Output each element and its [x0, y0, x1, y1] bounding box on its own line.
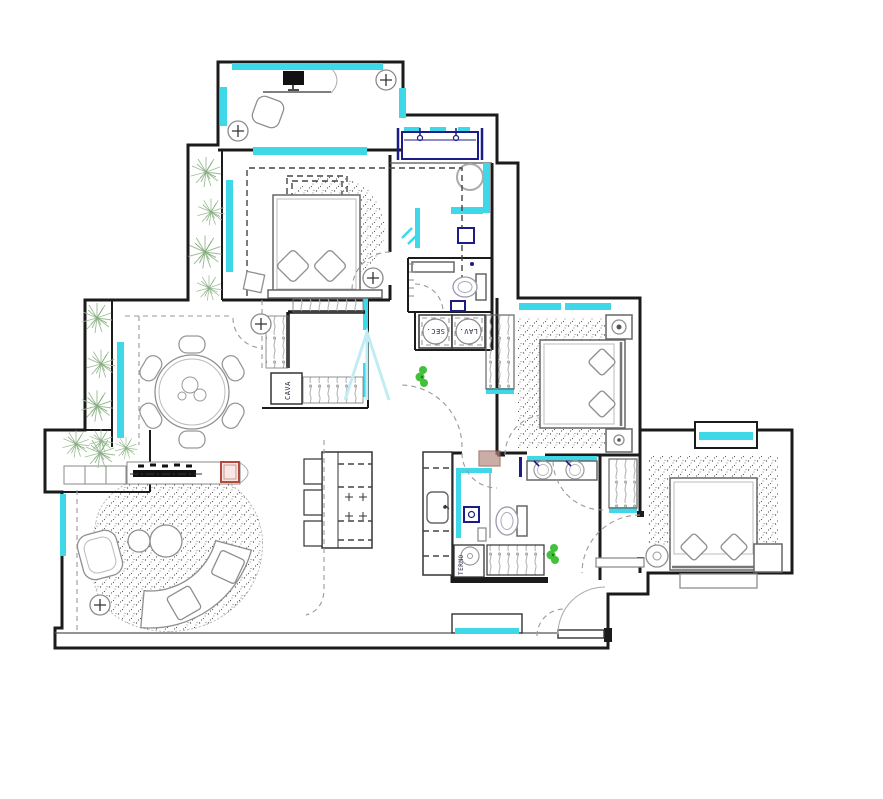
wc-vanity — [412, 262, 454, 272]
shower-wall-v — [456, 468, 461, 538]
south-niche-glass — [455, 628, 519, 634]
study-bedroom-glass — [253, 147, 367, 155]
rounded-end-cap — [240, 463, 248, 483]
shower-wall-h — [456, 468, 492, 473]
dining-planter-window — [117, 342, 124, 438]
hall-corner-glass-h — [451, 207, 483, 214]
dining-area — [125, 316, 263, 448]
nightstand — [754, 544, 782, 572]
potted-plant-marker — [416, 366, 429, 387]
dining-table — [155, 355, 229, 429]
closet-partition — [288, 312, 365, 368]
wc-room — [409, 228, 486, 312]
hall-glass-strip — [415, 208, 420, 248]
bedroom2-wardrobe — [609, 459, 637, 508]
entry-door-swing — [558, 587, 605, 634]
toilet2-bowl — [496, 507, 518, 535]
entry-door-leaf — [558, 630, 604, 638]
hanger-row-top — [293, 299, 363, 312]
master-bed — [273, 195, 360, 293]
round-side-table — [646, 545, 668, 567]
door-jamb — [637, 511, 644, 517]
lamp-dot — [617, 438, 621, 442]
hall-door-swing — [400, 385, 462, 447]
study-left-window — [220, 87, 227, 126]
bar-stool — [304, 459, 322, 484]
bedroom2-window-bay — [695, 422, 757, 448]
wine-cellar-label: CAVA — [284, 381, 292, 400]
shower-drain — [464, 507, 479, 522]
study-right-window — [399, 88, 406, 118]
bathroom-south-wall — [452, 577, 548, 583]
door-niche — [479, 451, 500, 466]
study-room — [250, 68, 337, 130]
bedroom1-wardrobe — [486, 315, 514, 389]
bed-end-bench — [268, 290, 382, 298]
fireplace-sideboard — [64, 462, 248, 484]
kitchen — [304, 452, 452, 575]
foot-bench — [680, 574, 757, 588]
walk-in-closet: CAVA — [262, 299, 389, 404]
bedroom1-window-b — [565, 303, 611, 310]
desk-monitor — [283, 71, 304, 85]
laundry-room: SEC. LAV. — [419, 301, 485, 348]
floor-lamp-icon — [90, 595, 110, 615]
closet-glass-a — [363, 298, 368, 330]
wc-door-swing — [415, 284, 443, 312]
floor-plan-drawing: CAVA SEC. LAV. — [0, 0, 883, 799]
desk-return-curve — [331, 68, 337, 93]
column-marker-icon — [228, 121, 248, 141]
bedroom2 — [582, 459, 782, 588]
vanity-end-panel — [519, 457, 522, 477]
monitor-stand — [288, 85, 299, 90]
toilet-bowl — [453, 277, 477, 297]
column-marker-icon — [363, 268, 383, 288]
desk-chair — [250, 94, 286, 130]
dryer-label: SEC. — [426, 327, 445, 335]
lamp-dot — [617, 325, 622, 330]
hanger-row-bottom — [303, 377, 363, 403]
kitchen-island — [322, 452, 372, 548]
hall-corner-glass-v — [483, 163, 490, 213]
coffee-table-large — [150, 525, 182, 557]
planter-a-window — [226, 180, 233, 272]
laundry-balcony — [398, 128, 483, 190]
entry-jamb — [604, 628, 612, 642]
hall-shelf — [458, 228, 474, 243]
shower-shelf — [478, 528, 486, 541]
bar-stool — [304, 521, 322, 546]
water-heater-label: TERMO — [458, 554, 465, 575]
living-west-window — [60, 494, 66, 556]
bar-stool — [304, 490, 322, 515]
bathroom-wardrobe — [487, 545, 544, 575]
side-table — [243, 271, 264, 292]
balcony-bench — [402, 132, 478, 159]
washer-label: LAV. — [459, 327, 478, 335]
column-marker-icon — [376, 70, 396, 90]
study-top-window — [232, 63, 383, 70]
corridor-console — [596, 558, 644, 567]
coffee-table-small — [128, 530, 150, 552]
bedroom2-bed — [670, 478, 757, 570]
bedroom1-bed — [540, 340, 625, 428]
laundry-shelf — [451, 301, 465, 311]
potted-plant-marker — [547, 544, 560, 564]
column-marker-icon — [251, 314, 271, 334]
flush-button — [470, 262, 474, 266]
sideboard — [64, 466, 126, 484]
bedroom1-window-a — [519, 303, 561, 310]
floor-plan-canvas: CAVA SEC. LAV. — [0, 0, 883, 799]
